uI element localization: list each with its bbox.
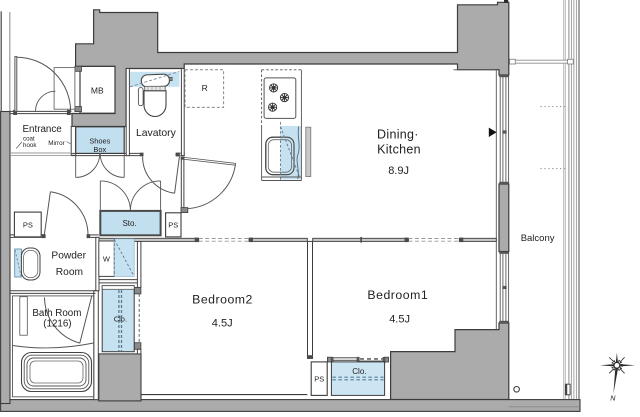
svg-text:Mirror: Mirror — [48, 140, 64, 147]
svg-text:Bedroom1: Bedroom1 — [367, 288, 428, 302]
svg-text:Box: Box — [93, 145, 106, 154]
svg-text:PS: PS — [314, 375, 324, 384]
svg-text:Clo.: Clo. — [352, 367, 366, 376]
svg-text:4.5J: 4.5J — [389, 313, 410, 325]
svg-text:Bath Room: Bath Room — [32, 308, 81, 319]
svg-text:Room: Room — [56, 267, 83, 278]
svg-text:Lavatory: Lavatory — [136, 128, 177, 139]
svg-text:Clo.: Clo. — [114, 314, 127, 323]
svg-text:W: W — [103, 254, 111, 263]
svg-text:Bedroom2: Bedroom2 — [192, 293, 253, 307]
svg-text:R: R — [202, 83, 208, 93]
svg-text:8.9J: 8.9J — [388, 165, 409, 177]
svg-text:4.5J: 4.5J — [212, 318, 233, 330]
svg-text:PS: PS — [168, 221, 178, 230]
svg-text:Sto.: Sto. — [122, 219, 136, 228]
svg-text:MB: MB — [91, 85, 104, 95]
svg-text:Dining·: Dining· — [377, 128, 419, 142]
svg-text:Balcony: Balcony — [521, 233, 555, 244]
svg-text:Entrance: Entrance — [22, 124, 62, 135]
svg-text:Powder: Powder — [51, 251, 86, 262]
svg-text:N: N — [610, 393, 616, 402]
svg-text:PS: PS — [23, 220, 33, 229]
svg-text:hook: hook — [23, 142, 37, 149]
svg-text:Kitchen: Kitchen — [377, 143, 421, 157]
svg-text:(1216): (1216) — [43, 318, 71, 329]
